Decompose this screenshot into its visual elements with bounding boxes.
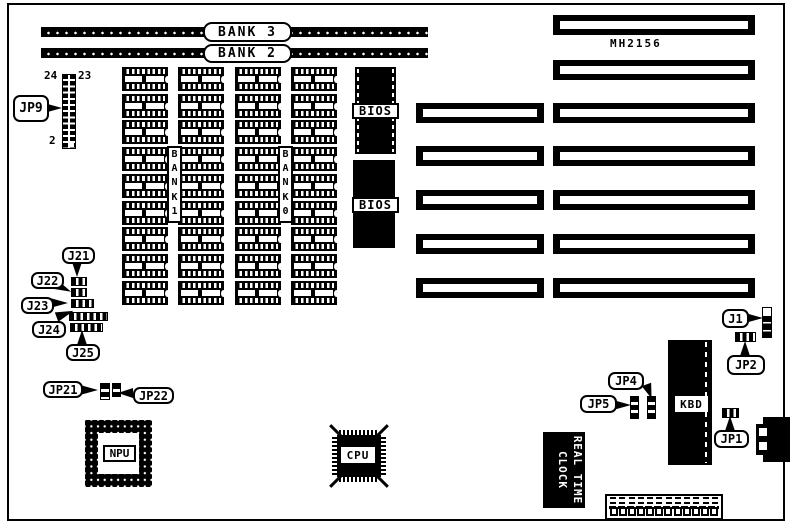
- jp21-callout: JP21: [43, 381, 83, 398]
- rtc-chip: REAL TIME CLOCK: [543, 432, 585, 508]
- dram-chip: [291, 254, 337, 278]
- dram-chip: [235, 94, 281, 118]
- motherboard-diagram: BANK 3 BANK 2 BANK1 BANK0 BIOS BIOS MH21…: [0, 0, 791, 527]
- callout-tail: [725, 416, 735, 431]
- board-model-label: MH2156: [610, 37, 670, 50]
- j22-callout: J22: [31, 272, 64, 289]
- bios1-label: BIOS: [352, 103, 399, 119]
- j24-callout: J24: [32, 321, 66, 338]
- j22-jumper: [71, 288, 87, 297]
- callout-tail: [740, 341, 750, 356]
- jp2-callout: JP2: [727, 355, 765, 375]
- power-connector: [605, 494, 723, 520]
- dram-chip: [235, 147, 281, 171]
- dram-chip: [122, 174, 168, 198]
- dram-chip-array: [122, 67, 338, 305]
- expansion-slot: [416, 278, 544, 298]
- jp9-callout: JP9: [13, 95, 49, 122]
- power-pin: [646, 507, 654, 516]
- power-pin: [647, 497, 653, 504]
- jp1-callout: JP1: [714, 430, 749, 448]
- callout-tail: [72, 262, 82, 277]
- dram-chip: [178, 174, 224, 198]
- power-pins-top: [610, 497, 718, 505]
- expansion-slot: [553, 15, 755, 35]
- dram-chip: [178, 201, 224, 225]
- dram-chip: [178, 147, 224, 171]
- expansion-slot: [553, 190, 755, 210]
- dram-chip: [122, 67, 168, 91]
- jp22-callout: JP22: [133, 387, 174, 404]
- bank0-label: BANK0: [278, 146, 293, 223]
- expansion-slot: [553, 60, 755, 80]
- power-pin: [656, 497, 662, 504]
- jp21-jumper: [100, 383, 110, 400]
- j25-callout: J25: [66, 344, 100, 361]
- bios2-label: BIOS: [352, 197, 399, 213]
- j21-jumper: [71, 277, 87, 286]
- power-pins-bottom: [610, 507, 718, 517]
- dram-chip: [291, 147, 337, 171]
- bank2-label: BANK 2: [203, 44, 292, 63]
- power-pin: [693, 497, 699, 504]
- dram-chip: [122, 281, 168, 305]
- power-pin: [674, 507, 682, 516]
- npu-socket: NPU: [85, 420, 152, 487]
- jp9-pin23-label: 23: [78, 69, 91, 82]
- expansion-slot: [416, 234, 544, 254]
- expansion-slot: [553, 103, 755, 123]
- j23-jumper: [71, 299, 94, 308]
- j1-callout: J1: [722, 309, 749, 328]
- jp5-jumper: [630, 396, 639, 419]
- expansion-slot: [416, 190, 544, 210]
- dram-chip: [122, 147, 168, 171]
- j24-jumper: [69, 312, 108, 321]
- dram-chip: [291, 174, 337, 198]
- power-pin: [628, 507, 636, 516]
- dram-chip: [235, 281, 281, 305]
- power-pin: [619, 507, 627, 516]
- bank3-label: BANK 3: [203, 22, 292, 42]
- expansion-slot: [416, 103, 544, 123]
- jp4-callout: JP4: [608, 372, 644, 390]
- cpu-label: CPU: [341, 447, 375, 463]
- dram-chip: [178, 67, 224, 91]
- power-pin: [610, 497, 616, 504]
- power-pin: [684, 497, 690, 504]
- keyboard-connector: [763, 417, 790, 462]
- jp9-pin2-label: 2: [49, 134, 56, 147]
- power-pin: [629, 497, 635, 504]
- dram-chip: [235, 120, 281, 144]
- expansion-slot: [553, 278, 755, 298]
- dram-chip: [235, 227, 281, 251]
- dram-chip: [291, 281, 337, 305]
- cpu-pins-bottom: [339, 477, 379, 482]
- keyboard-connector-notch: [759, 428, 767, 436]
- callout-tail: [77, 330, 87, 345]
- rtc-label: REAL TIME CLOCK: [543, 432, 585, 508]
- dram-chip: [235, 174, 281, 198]
- dram-chip: [122, 94, 168, 118]
- dram-chip: [122, 227, 168, 251]
- j1-header: [762, 307, 772, 338]
- j21-callout: J21: [62, 247, 95, 264]
- dram-chip: [122, 201, 168, 225]
- power-pin: [692, 507, 700, 516]
- dram-chip: [178, 254, 224, 278]
- j23-callout: J23: [21, 297, 54, 314]
- expansion-slot: [416, 146, 544, 166]
- jp9-pin24-label: 24: [44, 69, 57, 82]
- dram-chip: [291, 94, 337, 118]
- jp9-pin-header: [62, 74, 76, 149]
- power-pin: [701, 507, 709, 516]
- dram-chip: [178, 94, 224, 118]
- dram-chip: [178, 227, 224, 251]
- dram-chip: [178, 281, 224, 305]
- dram-chip: [291, 227, 337, 251]
- dram-chip: [235, 254, 281, 278]
- power-pin: [610, 507, 618, 516]
- power-pin: [664, 507, 672, 516]
- power-pin: [703, 497, 709, 504]
- dram-chip: [235, 67, 281, 91]
- power-pin: [638, 497, 644, 504]
- dram-chip: [122, 254, 168, 278]
- callout-tail: [118, 388, 133, 398]
- dram-chip: [235, 201, 281, 225]
- expansion-slot: [553, 146, 755, 166]
- power-pin: [637, 507, 645, 516]
- npu-label: NPU: [103, 445, 136, 462]
- power-pin: [710, 507, 718, 516]
- power-pin: [683, 507, 691, 516]
- kbd-label: KBD: [675, 396, 708, 412]
- dram-chip: [291, 201, 337, 225]
- power-pin: [675, 497, 681, 504]
- keyboard-connector-notch: [759, 442, 767, 450]
- power-pin: [619, 497, 625, 504]
- dram-chip: [178, 120, 224, 144]
- bank1-label: BANK1: [167, 146, 182, 223]
- power-pin: [655, 507, 663, 516]
- cpu-pins-right: [381, 437, 386, 475]
- dram-chip: [291, 67, 337, 91]
- dram-chip: [122, 120, 168, 144]
- jp5-callout: JP5: [580, 395, 617, 413]
- power-pin: [712, 497, 718, 504]
- dram-chip: [291, 120, 337, 144]
- power-pin: [666, 497, 672, 504]
- expansion-slot: [553, 234, 755, 254]
